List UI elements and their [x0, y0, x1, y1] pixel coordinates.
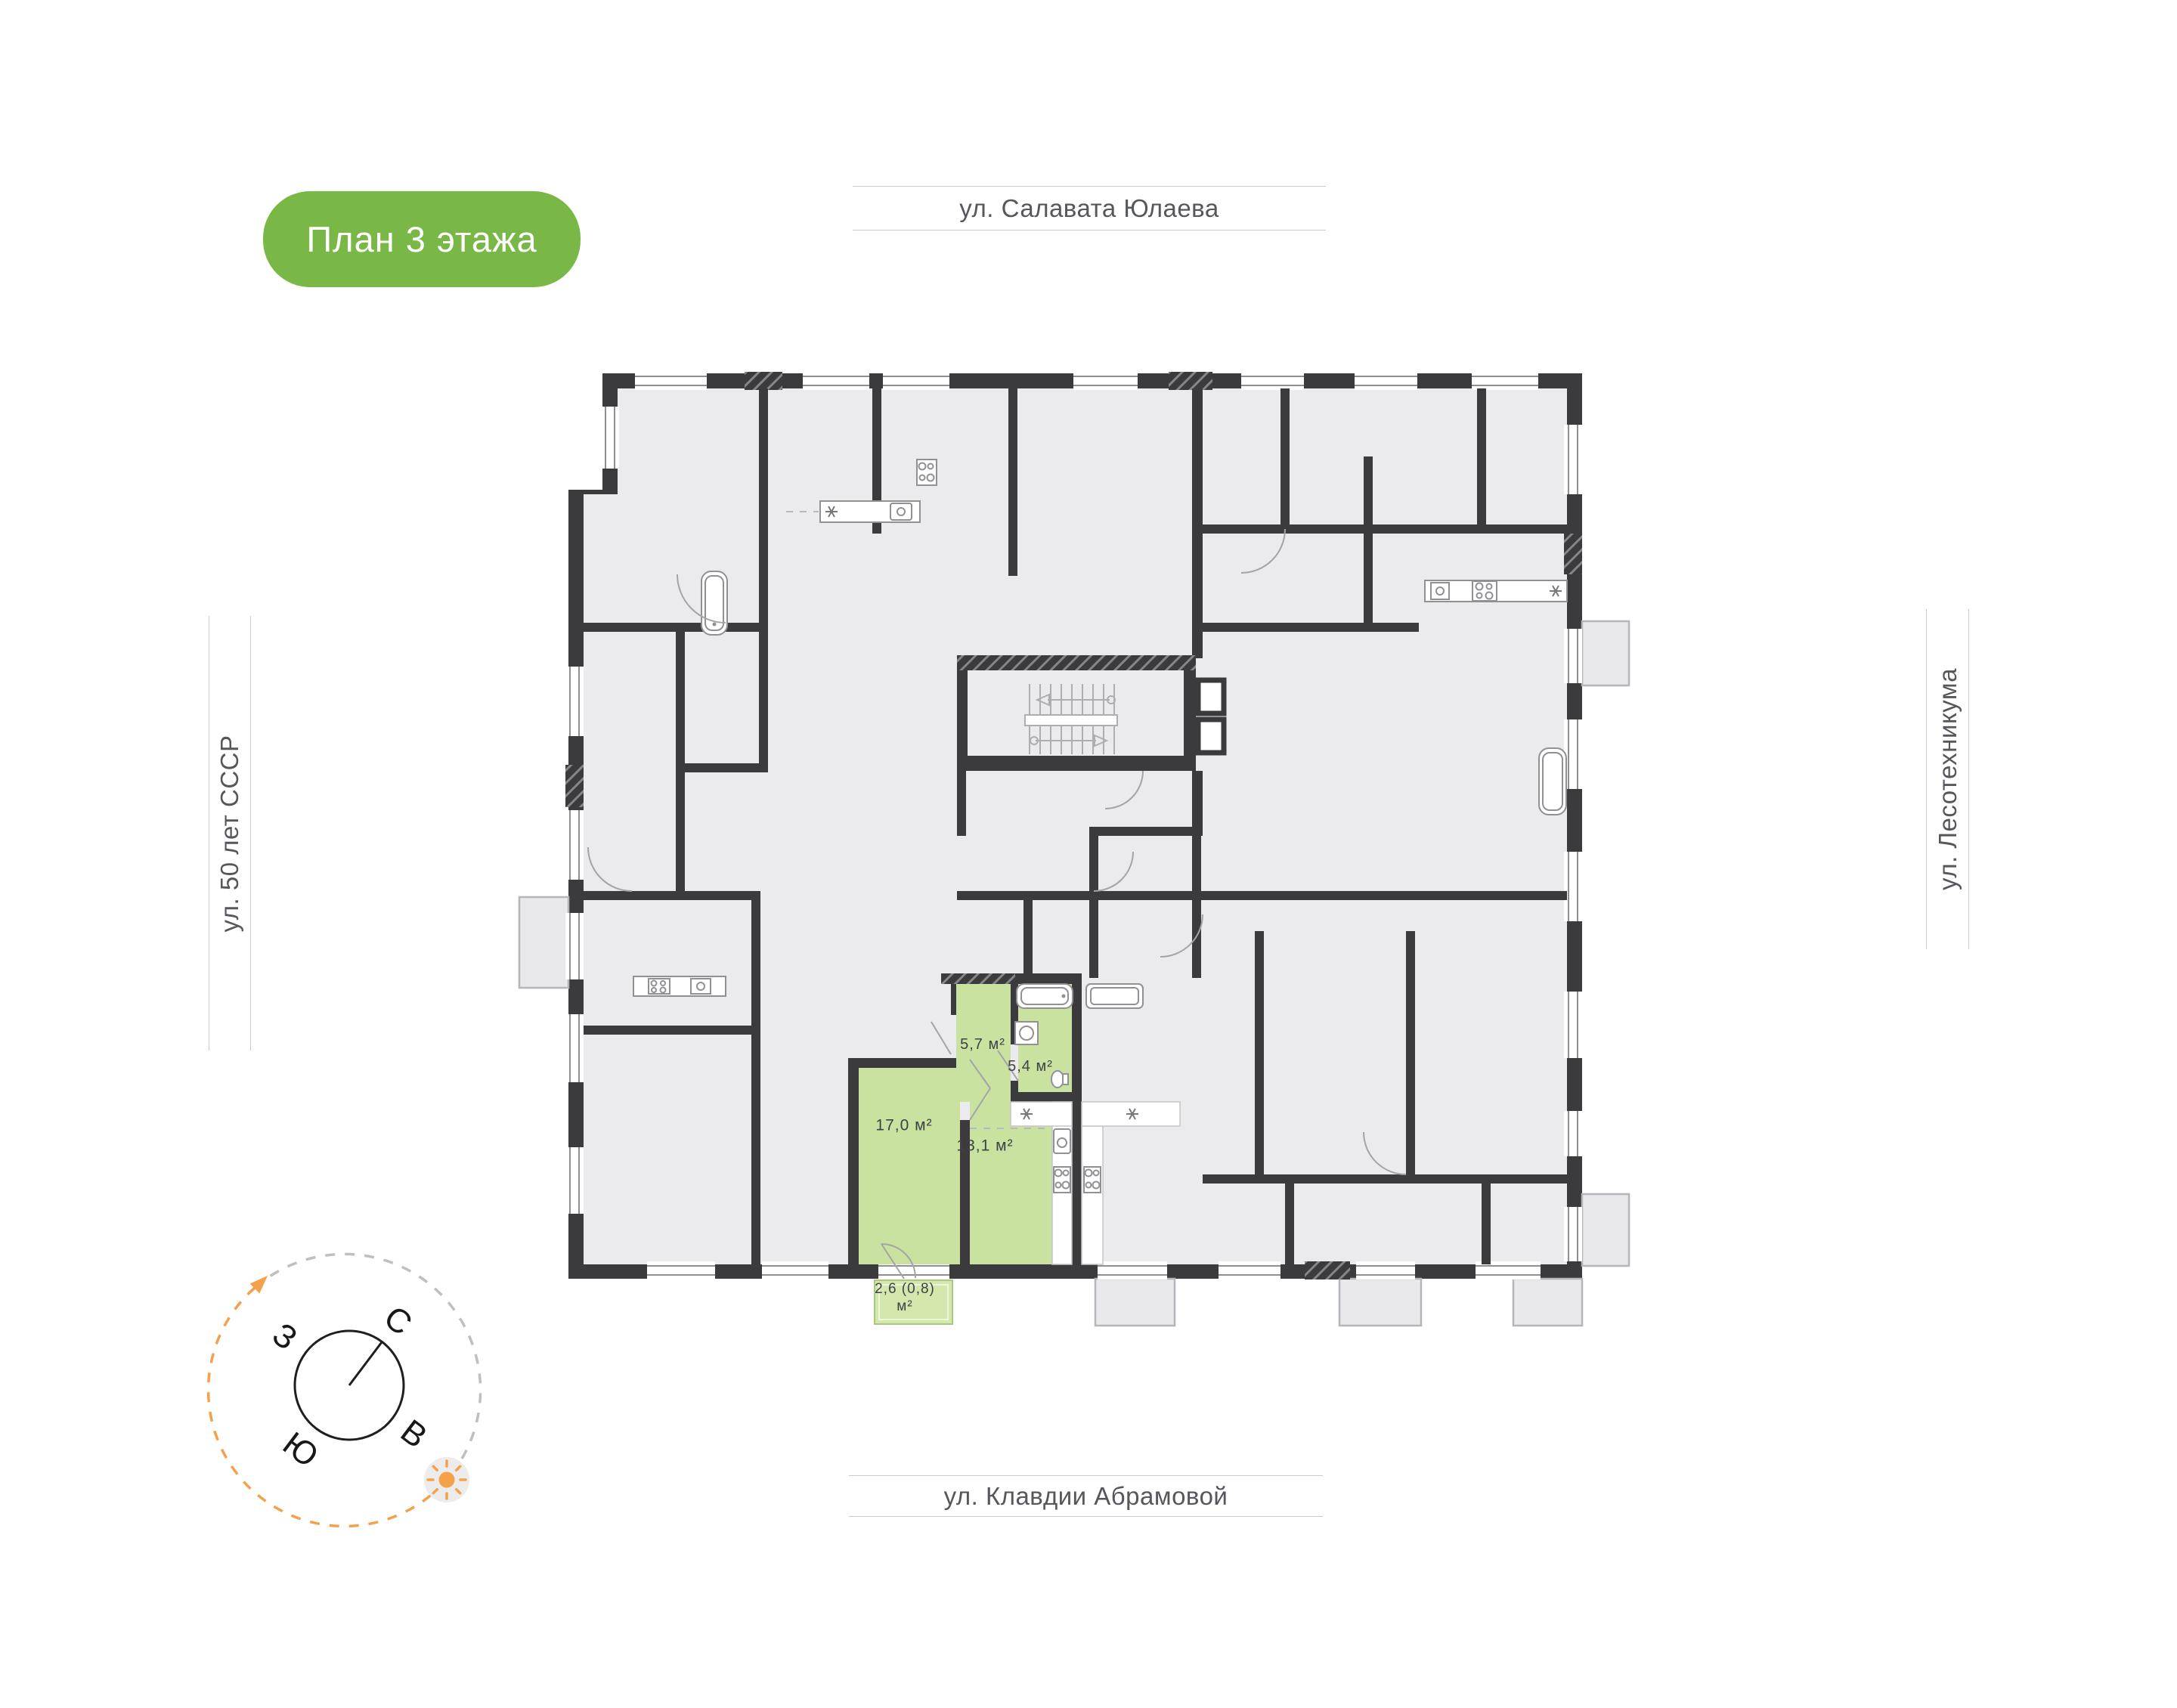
stove-icon [1084, 1167, 1101, 1193]
area-label-hallway: 5,7 м² [960, 1035, 1005, 1054]
kitchen-counter-icon [1425, 580, 1567, 602]
compass-north-label: С [377, 1298, 419, 1342]
area-label-bathroom: 5,4 м² [1008, 1057, 1053, 1075]
area-label-balcony: 2,6 (0,8) м² [875, 1281, 935, 1316]
area-label-kitchen: 13,1 м² [956, 1136, 1013, 1155]
stove-icon [1054, 1167, 1070, 1193]
bathtub-icon [1017, 984, 1073, 1008]
balcony-right-1 [1582, 621, 1629, 685]
sink-icon [1054, 1129, 1070, 1153]
balcony-bottom-1 [1095, 1279, 1175, 1326]
balcony-left [519, 897, 568, 988]
bathtub-icon [701, 571, 727, 635]
balcony-area-value: 2,6 (0,8) [875, 1281, 935, 1298]
compass-east-label: В [394, 1413, 434, 1456]
balcony-area-unit: м² [875, 1298, 935, 1316]
area-label-living: 17,0 м² [875, 1115, 932, 1134]
balcony-bottom-2 [1339, 1279, 1421, 1326]
compass-south-label: Ю [276, 1425, 325, 1475]
floor-plan-page: План 3 этажа ул. Салавата Юлаева ул. Кла… [0, 0, 2177, 1708]
room-living [859, 1068, 960, 1264]
balcony-right-2 [1582, 1194, 1629, 1266]
compass-west-label: З [265, 1316, 304, 1357]
washer-icon [1015, 1022, 1038, 1044]
sun-icon [424, 1457, 469, 1502]
bathtub-icon [1086, 984, 1143, 1008]
toilet-icon [1051, 1071, 1068, 1088]
compass: С В Ю З [198, 1234, 500, 1536]
kitchen-counter-icon [633, 976, 726, 996]
bathtub-icon [1539, 748, 1566, 815]
balcony-bottom-3 [1513, 1279, 1582, 1326]
windows-top [635, 372, 1538, 390]
